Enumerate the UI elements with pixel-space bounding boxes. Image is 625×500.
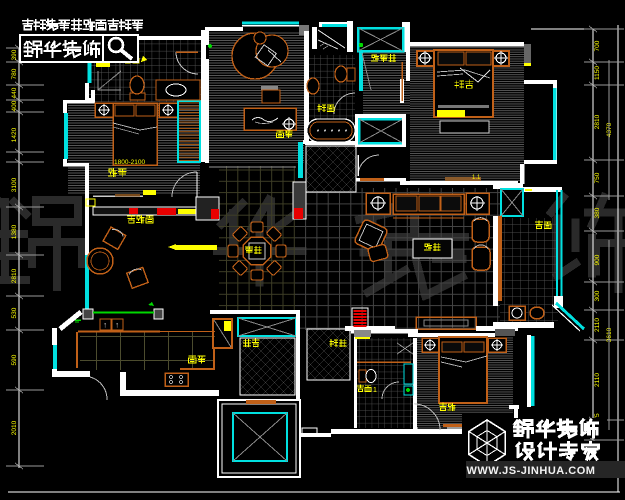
svg-text:590: 590 — [11, 354, 18, 365]
svg-text:900: 900 — [594, 254, 601, 265]
svg-text:1150: 1150 — [594, 66, 601, 80]
svg-text:1380: 1380 — [11, 224, 18, 239]
svg-text:1800-2100: 1800-2100 — [114, 159, 145, 166]
svg-text:↑: ↑ — [115, 321, 119, 330]
svg-text:440: 440 — [11, 87, 18, 98]
svg-text:1.1: 1.1 — [472, 175, 481, 181]
svg-text:2810: 2810 — [594, 114, 601, 129]
svg-text:↑: ↑ — [103, 321, 107, 330]
svg-text:1: 1 — [373, 387, 377, 394]
svg-text:3610: 3610 — [606, 327, 613, 342]
svg-text:4370: 4370 — [606, 122, 613, 137]
svg-text:3100: 3100 — [11, 177, 18, 192]
svg-text:700: 700 — [594, 40, 601, 51]
svg-text:2110: 2110 — [594, 318, 601, 332]
svg-text:390: 390 — [11, 49, 18, 60]
svg-text:380: 380 — [594, 207, 601, 218]
svg-text:WWW.JS-JINHUA.COM: WWW.JS-JINHUA.COM — [467, 465, 596, 477]
svg-text:300: 300 — [594, 290, 601, 301]
svg-text:530: 530 — [11, 307, 18, 318]
svg-text:400: 400 — [11, 100, 18, 111]
svg-text:1420: 1420 — [11, 127, 18, 142]
svg-text:2810: 2810 — [11, 268, 18, 283]
svg-text:2010: 2010 — [11, 420, 18, 435]
svg-text:750: 750 — [594, 172, 601, 183]
svg-text:780: 780 — [11, 68, 18, 79]
svg-text:2110: 2110 — [594, 373, 601, 387]
